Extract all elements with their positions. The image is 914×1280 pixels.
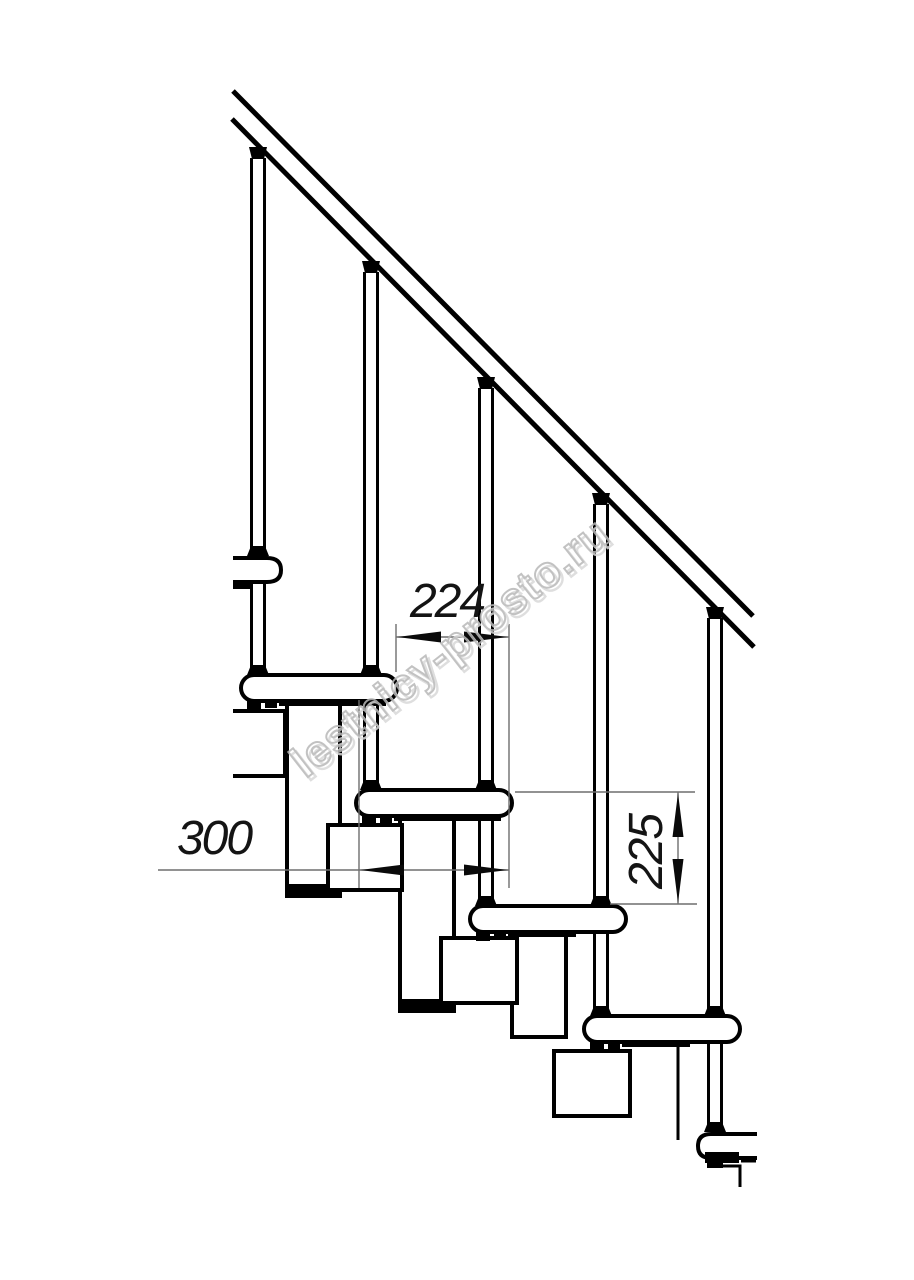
rail-collar [249, 147, 267, 159]
support-column-under-tread-4 [512, 932, 566, 1037]
fitting [705, 1152, 739, 1163]
module-box-under-tread-5 [554, 1051, 630, 1116]
watermark-text: lestnicy-prosto.ru [281, 508, 618, 786]
arrowhead-up [673, 793, 684, 837]
rail-collar [592, 493, 610, 505]
dimension-label-300: 300 [177, 812, 253, 865]
dimension-label-225: 225 [620, 813, 673, 890]
fitting [265, 699, 277, 708]
lower-step-profile-fragment [717, 1161, 756, 1187]
arrowhead-down [673, 859, 684, 903]
fitting [247, 699, 261, 710]
fitting [608, 1040, 620, 1049]
fitting [590, 1040, 604, 1051]
baluster-5 [709, 618, 722, 1132]
arrowhead-right [464, 865, 508, 876]
fitting-strip [394, 814, 501, 821]
rail-collar [477, 377, 495, 389]
fitting [380, 814, 392, 823]
baluster-4 [595, 504, 608, 1016]
module-box-under-tread-4 [441, 938, 517, 1003]
tread-1-partial [233, 558, 281, 582]
staircase-side-view-drawing: 224 300 225 lestnicy-prosto.ru lestnicy-… [0, 0, 914, 1280]
tread-3 [356, 790, 512, 816]
rail-collar [706, 607, 724, 619]
rail-collar [362, 261, 380, 273]
baluster-1 [252, 158, 265, 675]
fitting [233, 582, 253, 589]
fitting [362, 814, 376, 825]
fitting [476, 930, 490, 941]
module-box-under-tread-2 [233, 711, 285, 776]
fitting-strip [622, 1040, 690, 1047]
fitting [494, 930, 506, 939]
column-body [512, 932, 566, 1037]
staircase-drawing-page: 224 300 225 lestnicy-prosto.ru lestnicy-… [0, 0, 914, 1280]
module-box-under-tread-3 [328, 825, 402, 890]
fitting-strip [508, 930, 576, 937]
profile-line [717, 1166, 740, 1187]
tread-5 [584, 1016, 740, 1042]
watermark: lestnicy-prosto.ru lestnicy-prosto.ru [281, 508, 621, 789]
tread-4 [470, 906, 626, 932]
baluster-rail-collars [249, 147, 724, 619]
